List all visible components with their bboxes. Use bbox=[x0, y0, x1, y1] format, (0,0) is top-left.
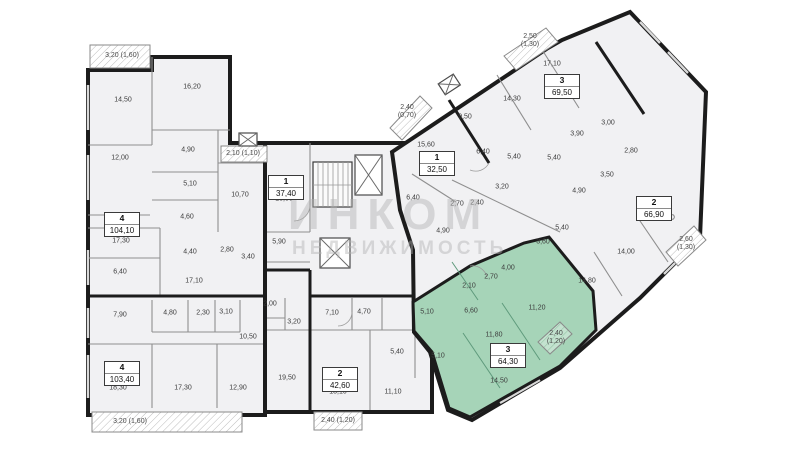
room-area-label: 3,20 bbox=[287, 319, 301, 326]
room-area-label: 17,30 bbox=[174, 385, 192, 392]
unit-area: 69,50 bbox=[545, 87, 579, 98]
room-area-label: 2,10 bbox=[462, 283, 476, 290]
room-area-label: 5,40 bbox=[507, 154, 521, 161]
unit-type: 1 bbox=[420, 152, 454, 164]
unit-type: 2 bbox=[637, 197, 671, 209]
unit-area: 103,40 bbox=[105, 374, 139, 385]
unit-type: 4 bbox=[105, 362, 139, 374]
room-area-label: 4,60 bbox=[180, 214, 194, 221]
room-area-label: 6,40 bbox=[113, 269, 127, 276]
unit-badge-2-66[interactable]: 2 66,90 bbox=[636, 196, 672, 221]
watermark-line1: ИНКОМ bbox=[288, 190, 489, 240]
room-area-label: 4,90 bbox=[181, 147, 195, 154]
room-area-label: 3,90 bbox=[570, 131, 584, 138]
room-area-label: 14,00 bbox=[617, 249, 635, 256]
room-area-label: 4,40 bbox=[183, 249, 197, 256]
room-area-label: 11,20 bbox=[529, 305, 546, 312]
room-area-label: 17,10 bbox=[543, 61, 561, 68]
unit-area: 64,30 bbox=[491, 356, 525, 367]
room-area-label: 19,50 bbox=[278, 375, 296, 382]
room-area-label: 7,10 bbox=[325, 310, 339, 317]
unit-badge-3-64-selected[interactable]: 3 64,30 bbox=[490, 343, 526, 368]
room-area-label: 17,10 bbox=[185, 278, 203, 285]
room-area-label: 3,40 bbox=[241, 254, 255, 261]
balcony-area-label: 3,20 (1,60) bbox=[105, 52, 139, 60]
room-area-label: 15,60 bbox=[417, 142, 435, 149]
unit-type: 3 bbox=[545, 75, 579, 87]
room-area-label: 5,10 bbox=[431, 353, 445, 360]
unit-badge-3-69[interactable]: 3 69,50 bbox=[544, 74, 580, 99]
room-area-label: 14,50 bbox=[490, 378, 508, 385]
room-area-label: 3,20 bbox=[495, 184, 509, 191]
room-area-label: 11,10 bbox=[385, 389, 402, 396]
room-area-label: 12,90 bbox=[229, 385, 247, 392]
balcony-area-label: 2,40 (1,20) bbox=[541, 330, 571, 346]
room-area-label: 4,90 bbox=[572, 188, 586, 195]
unit-area: 66,90 bbox=[637, 209, 671, 220]
room-area-label: 14,80 bbox=[578, 278, 596, 285]
balcony-area-label: 3,20 (1,60) bbox=[113, 418, 147, 426]
room-area-label: 14,50 bbox=[114, 97, 132, 104]
unit-badge-1-32[interactable]: 1 32,50 bbox=[419, 151, 455, 176]
room-area-label: 5,40 bbox=[555, 225, 569, 232]
room-area-label: 5,10 bbox=[183, 181, 197, 188]
unit-badge-4-103[interactable]: 4 103,40 bbox=[104, 361, 140, 386]
room-area-label: 14,30 bbox=[503, 96, 521, 103]
room-area-label: 3,10 bbox=[219, 309, 233, 316]
room-area-label: 9,50 bbox=[458, 114, 472, 121]
room-area-label: 4,70 bbox=[357, 309, 371, 316]
room-area-label: 5,40 bbox=[390, 349, 404, 356]
room-area-label: 3,60 bbox=[536, 239, 550, 246]
room-area-label: 5,40 bbox=[547, 155, 561, 162]
unit-area: 104,10 bbox=[105, 225, 139, 236]
room-area-label: 4,00 bbox=[501, 265, 515, 272]
room-area-label: 4,80 bbox=[163, 310, 177, 317]
unit-badge-4-104[interactable]: 4 104,10 bbox=[104, 212, 140, 237]
unit-type: 3 bbox=[491, 344, 525, 356]
room-area-label: 2,70 bbox=[484, 274, 498, 281]
floor-plan: ИНКОМ НЕДВИЖИМОСТЬ 14,5016,2012,004,905,… bbox=[0, 0, 800, 450]
room-area-label: 10,50 bbox=[239, 334, 257, 341]
balcony-area-label: 2,40 (1,20) bbox=[321, 417, 355, 425]
room-area-label: 11,80 bbox=[486, 332, 503, 339]
room-area-label: 6,60 bbox=[464, 308, 478, 315]
room-area-label: 3,00 bbox=[601, 120, 615, 127]
balcony-area-label: 2,10 (1,10) bbox=[226, 150, 260, 158]
balcony-area-label: 2,60 (1,30) bbox=[671, 236, 701, 252]
room-area-label: 2,30 bbox=[196, 310, 210, 317]
room-area-label: 3,50 bbox=[600, 172, 614, 179]
room-area-label: 2,80 bbox=[220, 247, 234, 254]
watermark-line2: НЕДВИЖИМОСТЬ bbox=[292, 238, 507, 260]
room-area-label: 17,30 bbox=[112, 238, 130, 245]
room-area-label: 2,00 bbox=[263, 301, 277, 308]
balcony-area-label: 2,50 (1,30) bbox=[515, 33, 545, 49]
room-area-label: 6,40 bbox=[476, 149, 490, 156]
unit-area: 37,40 bbox=[269, 188, 303, 199]
unit-type: 1 bbox=[269, 176, 303, 188]
unit-area: 42,60 bbox=[323, 380, 357, 391]
unit-badge-2-42[interactable]: 2 42,60 bbox=[322, 367, 358, 392]
unit-type: 2 bbox=[323, 368, 357, 380]
room-area-label: 12,00 bbox=[111, 155, 129, 162]
room-area-label: 7,90 bbox=[113, 312, 127, 319]
room-area-label: 16,20 bbox=[183, 84, 201, 91]
room-area-label: 5,90 bbox=[272, 239, 286, 246]
balcony-area-label: 2,40 (0,70) bbox=[392, 104, 422, 120]
room-area-label: 5,10 bbox=[420, 309, 434, 316]
unit-badge-1-37[interactable]: 1 37,40 bbox=[268, 175, 304, 200]
room-area-label: 10,70 bbox=[231, 192, 249, 199]
room-area-label: 2,80 bbox=[624, 148, 638, 155]
unit-type: 4 bbox=[105, 213, 139, 225]
unit-area: 32,50 bbox=[420, 164, 454, 175]
